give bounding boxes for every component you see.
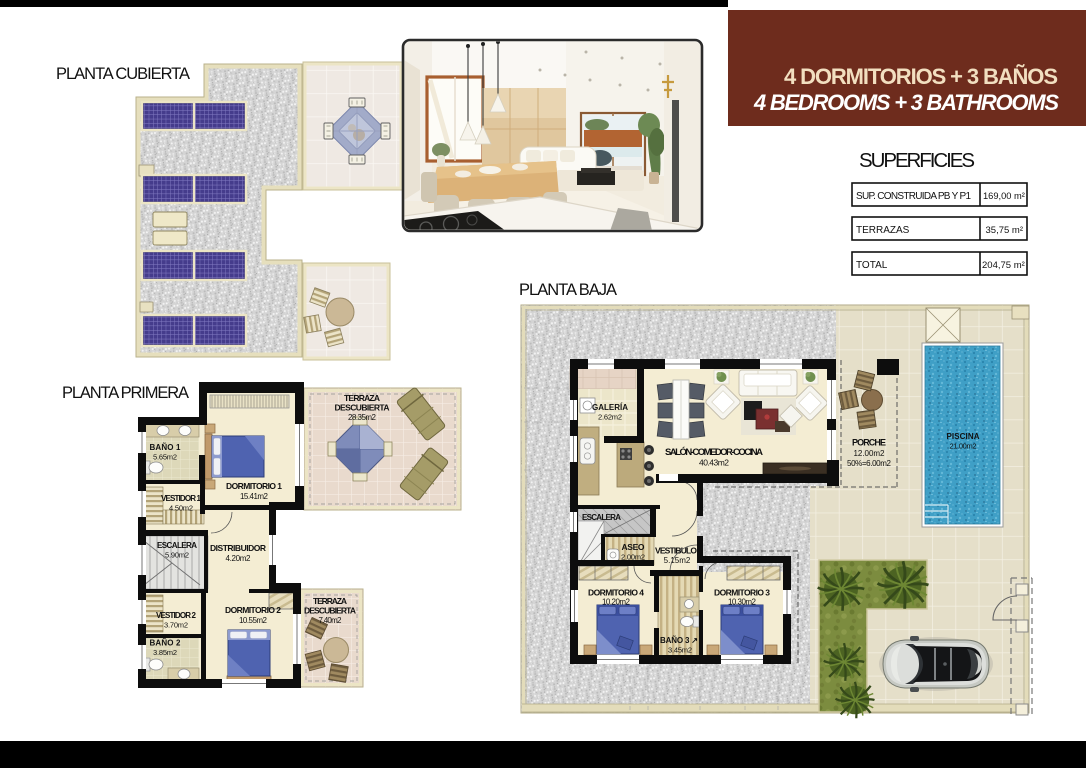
svg-text:DESCUBIERTA: DESCUBIERTA bbox=[335, 403, 390, 413]
svg-text:BAÑO 2: BAÑO 2 bbox=[150, 639, 182, 648]
svg-text:35,75 m²: 35,75 m² bbox=[986, 225, 1024, 236]
svg-text:BAÑO 3 ↗: BAÑO 3 ↗ bbox=[660, 636, 698, 645]
svg-text:5.15m2: 5.15m2 bbox=[664, 556, 691, 565]
svg-text:PLANTA CUBIERTA: PLANTA CUBIERTA bbox=[56, 65, 190, 83]
svg-text:TERRAZA: TERRAZA bbox=[313, 596, 347, 606]
svg-text:DORMITORIO 3: DORMITORIO 3 bbox=[714, 588, 770, 598]
svg-text:TERRAZAS: TERRAZAS bbox=[856, 225, 910, 236]
svg-text:SUPERFICIES: SUPERFICIES bbox=[859, 149, 975, 172]
svg-text:169,00 m²: 169,00 m² bbox=[983, 191, 1025, 201]
svg-text:10.30m2: 10.30m2 bbox=[728, 598, 757, 607]
svg-text:ESCALERA: ESCALERA bbox=[157, 541, 197, 550]
svg-text:50%=6.00m2: 50%=6.00m2 bbox=[847, 459, 892, 468]
svg-text:DORMITORIO 1: DORMITORIO 1 bbox=[226, 481, 282, 491]
svg-text:TOTAL: TOTAL bbox=[856, 260, 888, 271]
svg-text:PLANTA BAJA: PLANTA BAJA bbox=[519, 281, 617, 299]
svg-text:PORCHE: PORCHE bbox=[852, 438, 886, 448]
svg-text:TERRAZA: TERRAZA bbox=[344, 393, 380, 403]
svg-text:10.55m2: 10.55m2 bbox=[239, 616, 268, 625]
svg-text:21.00m2: 21.00m2 bbox=[950, 442, 977, 451]
svg-text:GALERÍA: GALERÍA bbox=[592, 403, 628, 412]
svg-text:PLANTA PRIMERA: PLANTA PRIMERA bbox=[62, 384, 189, 402]
svg-text:VESTIDOR 2: VESTIDOR 2 bbox=[156, 611, 197, 620]
svg-text:7.40m2: 7.40m2 bbox=[319, 616, 343, 625]
svg-text:DISTRIBUIDOR: DISTRIBUIDOR bbox=[210, 543, 266, 553]
svg-text:28.35m2: 28.35m2 bbox=[348, 413, 377, 422]
svg-text:204,75 m²: 204,75 m² bbox=[982, 260, 1025, 271]
svg-text:15.41m2: 15.41m2 bbox=[240, 492, 269, 501]
svg-text:PISCINA: PISCINA bbox=[947, 432, 980, 441]
svg-text:4 BEDROOMS + 3 BATHROOMS: 4 BEDROOMS + 3 BATHROOMS bbox=[753, 90, 1059, 115]
svg-text:VESTIDOR 1: VESTIDOR 1 bbox=[161, 494, 202, 503]
svg-text:BAÑO 1: BAÑO 1 bbox=[150, 443, 182, 452]
svg-text:VESTIBULO: VESTIBULO bbox=[655, 546, 697, 556]
svg-text:3.85m2: 3.85m2 bbox=[153, 648, 177, 657]
svg-text:5.65m2: 5.65m2 bbox=[153, 453, 177, 462]
svg-text:3.70m2: 3.70m2 bbox=[164, 621, 188, 630]
svg-text:40.43m2: 40.43m2 bbox=[699, 458, 729, 468]
svg-text:4.20m2: 4.20m2 bbox=[226, 554, 252, 563]
svg-text:SUP. CONSTRUIDA PB Y P1: SUP. CONSTRUIDA PB Y P1 bbox=[856, 191, 971, 202]
svg-text:SALÓN-COMEDOR-COCINA: SALÓN-COMEDOR-COCINA bbox=[665, 446, 763, 458]
svg-text:DORMITORIO 2: DORMITORIO 2 bbox=[225, 605, 281, 615]
svg-text:DORMITORIO 4: DORMITORIO 4 bbox=[588, 588, 644, 598]
svg-text:ASEO: ASEO bbox=[622, 542, 645, 552]
svg-text:12.00m2: 12.00m2 bbox=[854, 449, 886, 458]
svg-text:10.20m2: 10.20m2 bbox=[602, 598, 631, 607]
svg-text:DESCUBIERTA: DESCUBIERTA bbox=[304, 606, 356, 616]
svg-text:4 DORMITORIOS + 3 BAÑOS: 4 DORMITORIOS + 3 BAÑOS bbox=[784, 64, 1058, 89]
svg-text:2.62m2: 2.62m2 bbox=[598, 413, 622, 422]
svg-text:3.45m2: 3.45m2 bbox=[668, 646, 692, 655]
svg-text:5.90m2: 5.90m2 bbox=[165, 551, 189, 560]
svg-text:4.50m2: 4.50m2 bbox=[169, 504, 193, 513]
svg-text:ESCALERA: ESCALERA bbox=[582, 513, 621, 522]
